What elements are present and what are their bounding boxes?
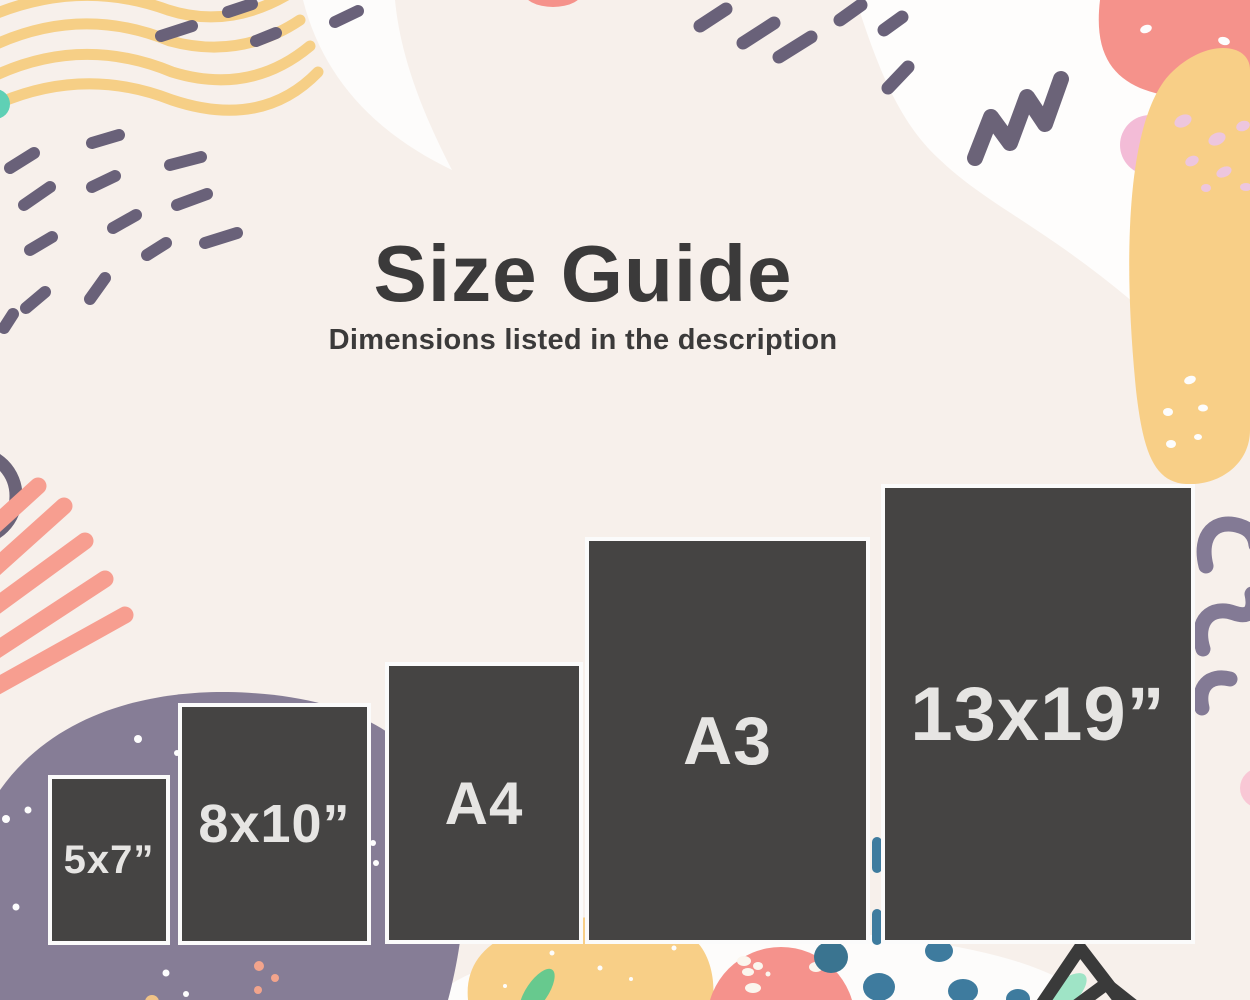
coral-arc-top	[523, 0, 583, 7]
size-card-a4: A4	[385, 662, 583, 944]
white-leaf	[303, 0, 452, 170]
purple-hooks	[1201, 524, 1250, 708]
size-card-8x10: 8x10”	[178, 703, 371, 945]
size-label: 5x7”	[64, 838, 155, 883]
size-card-13x19: 13x19”	[881, 484, 1195, 944]
heading: Size Guide Dimensions listed in the desc…	[0, 234, 1166, 357]
coral-stripes	[0, 486, 125, 689]
pink-dot-right-edge	[1240, 768, 1250, 808]
size-label: A3	[683, 702, 772, 780]
size-label: 13x19”	[910, 671, 1165, 758]
size-label: 8x10”	[198, 793, 350, 855]
size-card-a3: A3	[585, 537, 870, 944]
blue-blob-on-circle	[814, 941, 848, 973]
size-label: A4	[445, 769, 524, 838]
yellow-squiggle-lines	[0, 0, 318, 110]
size-card-5x7: 5x7”	[48, 775, 170, 945]
page-subtitle: Dimensions listed in the description	[0, 324, 1166, 357]
chevron-outline	[1042, 948, 1144, 1000]
page-title: Size Guide	[0, 234, 1166, 314]
size-guide-poster: Size Guide Dimensions listed in the desc…	[0, 0, 1250, 1000]
